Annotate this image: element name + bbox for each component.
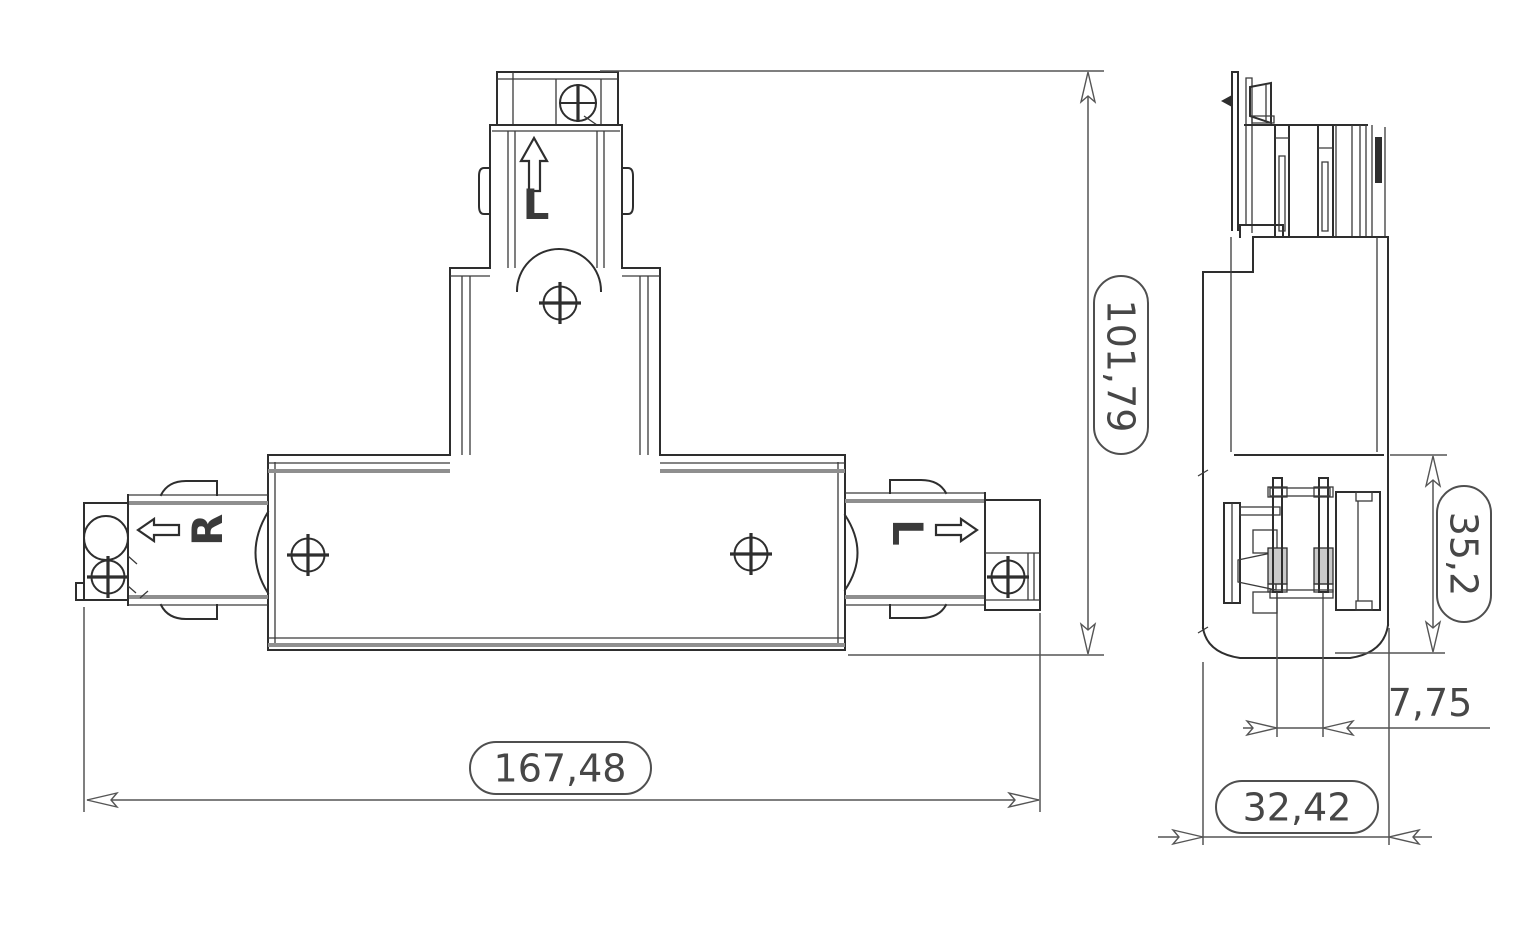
side-view [1198, 72, 1388, 658]
top-branch-letter: L [523, 180, 550, 229]
contact-pin-left [1268, 478, 1287, 630]
break-barb-icon [1221, 95, 1232, 107]
right-end-connector: L [845, 480, 1040, 618]
left-arrow-icon [138, 519, 179, 541]
screw-left-end-icon [87, 556, 129, 598]
screw-bar-right-icon [730, 533, 772, 575]
side-top-slats [1221, 72, 1385, 237]
twist-lock-knob [84, 516, 128, 560]
right-arrow-icon [936, 519, 977, 541]
top-connector-body: L [479, 125, 633, 268]
contact-pin-right [1314, 478, 1333, 630]
drawing-canvas: L R [0, 0, 1540, 927]
dimension-overall-height: 101,79 [600, 71, 1148, 655]
side-body [1198, 237, 1388, 658]
dimension-value: 167,48 [494, 746, 627, 790]
dimension-side-width: 32,42 [1158, 628, 1432, 845]
center-vertical-section [450, 249, 660, 455]
screw-center-icon [539, 282, 581, 324]
dimension-value: 35,2 [1442, 512, 1486, 597]
screw-right-end-icon [987, 556, 1029, 598]
screw-top-icon [559, 84, 597, 122]
horizontal-bar [256, 455, 858, 650]
screw-bar-left-icon [287, 534, 329, 576]
left-end-connector: R [76, 481, 268, 619]
right-branch-letter: L [883, 519, 932, 546]
dimension-value: 101,79 [1099, 300, 1143, 433]
left-branch-letter: R [183, 514, 232, 546]
dimensions: 101,79 167,48 35,2 7,75 [84, 71, 1491, 845]
dimension-contact-pitch: 7,75 [1243, 630, 1490, 737]
front-view: L R [76, 72, 1040, 650]
technical-drawing: L R [0, 0, 1540, 927]
side-contact-assembly [1224, 478, 1380, 630]
dimension-value: 7,75 [1388, 681, 1473, 725]
contact-housing-right [1336, 492, 1380, 610]
top-connector-cap [497, 72, 618, 125]
dimension-value: 32,42 [1243, 785, 1352, 829]
